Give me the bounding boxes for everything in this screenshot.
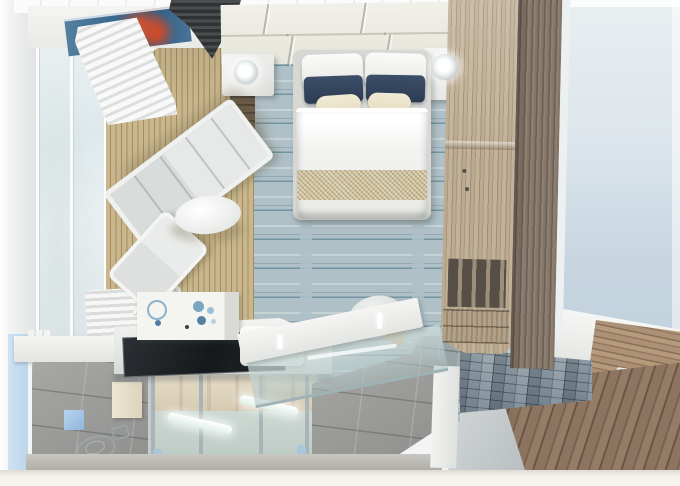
bathroom-bottom-wall [26,454,442,470]
bed-duvet [296,108,428,218]
wardrobe-ledge [445,141,515,151]
glass-reflection [377,313,382,329]
bed-runner [297,170,427,200]
decor-plate [207,307,214,314]
image-border-bottom [0,470,680,486]
decor-plate [211,319,216,324]
cabin-floorplan-render [0,0,680,486]
glass-reflection [277,335,282,349]
wardrobe-hook [465,187,469,191]
bathroom-beige-column [112,382,142,418]
wardrobe-drawers [443,309,510,344]
wardrobe-shelves [447,259,506,308]
bed-foot-shadow [296,213,428,221]
decor-knob [185,325,189,329]
bathroom-corridor-wall [430,366,460,469]
decor-dot [155,320,161,326]
decor-ring-lamp [147,300,167,320]
bedside-lamp-left [234,60,258,84]
decor-plate [193,301,204,312]
decor-plate [197,316,206,325]
vanity-cabinet [137,292,239,340]
wardrobe [439,0,576,393]
toilet-tank-outline [111,424,131,441]
bedside-lamp-right [432,54,458,80]
